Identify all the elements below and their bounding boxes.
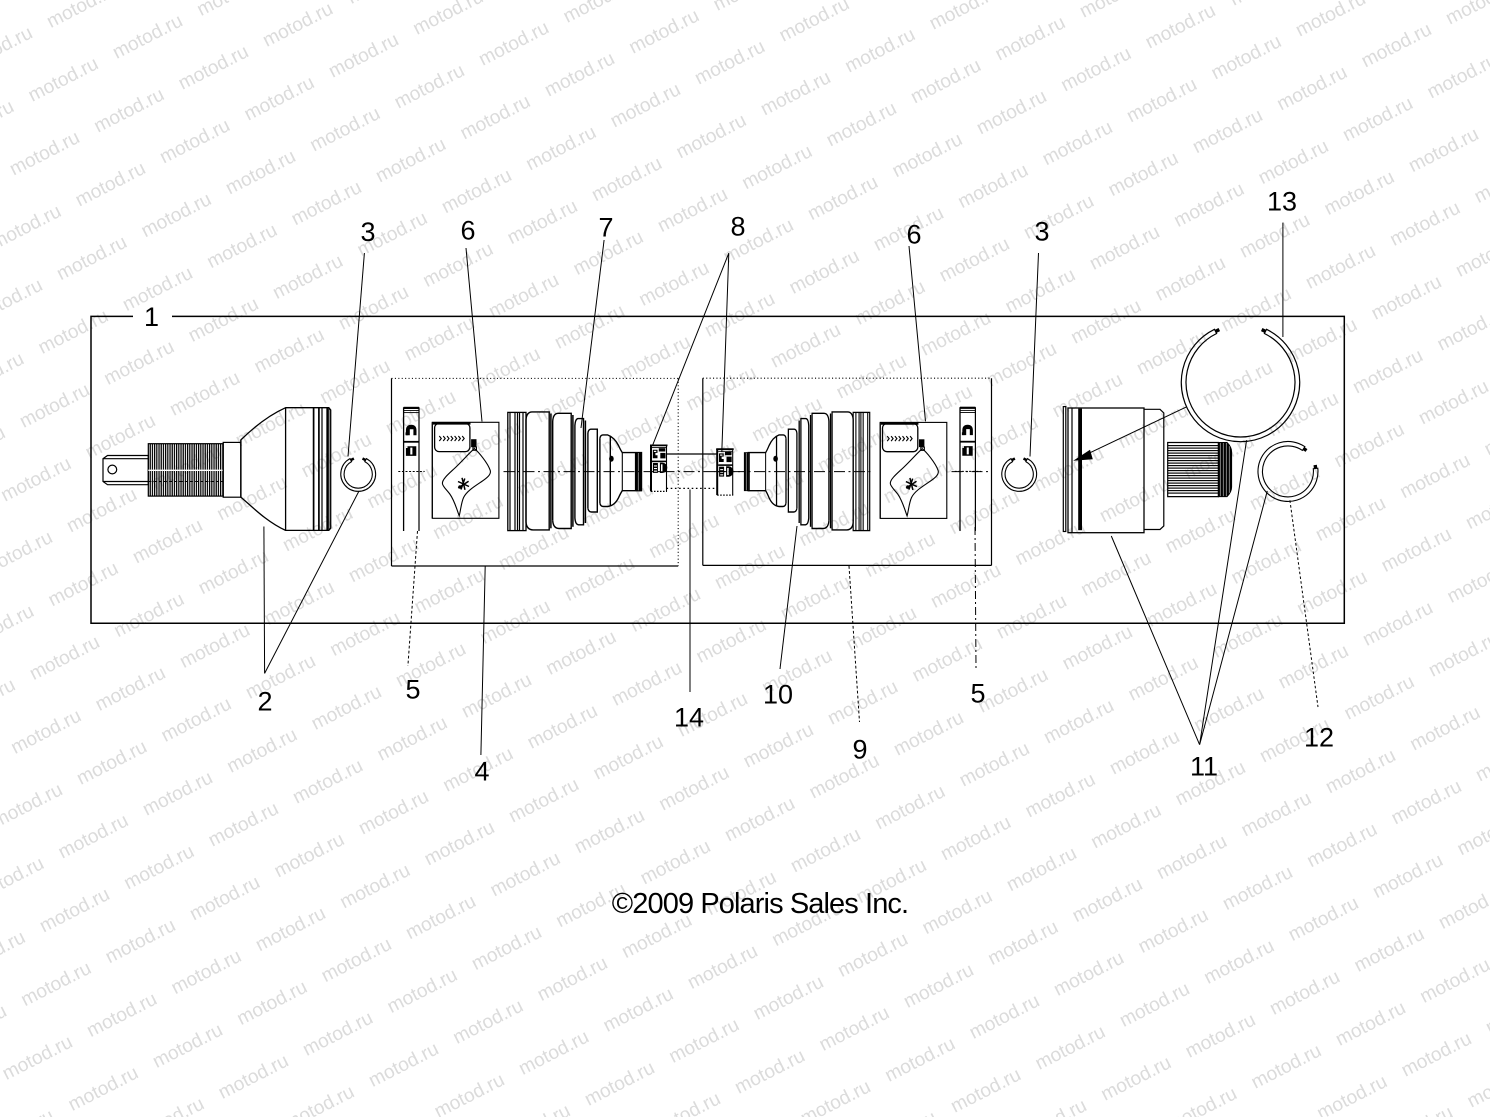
svg-text:motod.ru: motod.ru xyxy=(1106,726,1183,779)
svg-text:motod.ru: motod.ru xyxy=(420,239,497,292)
svg-text:motod.ru: motod.ru xyxy=(1059,622,1136,675)
svg-text:motod.ru: motod.ru xyxy=(626,5,703,58)
svg-text:motod.ru: motod.ru xyxy=(908,55,985,108)
svg-text:motod.ru: motod.ru xyxy=(373,134,450,187)
svg-text:motod.ru: motod.ru xyxy=(1088,800,1165,853)
svg-text:motod.ru: motod.ru xyxy=(234,977,311,1030)
svg-text:motod.ru: motod.ru xyxy=(1208,31,1285,84)
svg-text:motod.ru: motod.ru xyxy=(457,91,534,144)
svg-text:motod.ru: motod.ru xyxy=(0,1001,10,1054)
svg-text:motod.ru: motod.ru xyxy=(1340,93,1417,146)
svg-text:motod.ru: motod.ru xyxy=(589,153,666,206)
svg-text:motod.ru: motod.ru xyxy=(890,707,967,760)
svg-text:motod.ru: motod.ru xyxy=(1201,936,1278,989)
svg-text:motod.ru: motod.ru xyxy=(722,793,799,846)
svg-text:1: 1 xyxy=(144,302,159,332)
svg-text:motod.ru: motod.ru xyxy=(1032,1021,1109,1074)
svg-text:motod.ru: motod.ru xyxy=(504,196,581,249)
svg-text:motod.ru: motod.ru xyxy=(477,596,554,649)
svg-text:motod.ru: motod.ru xyxy=(1463,481,1490,534)
svg-text:motod.ru: motod.ru xyxy=(411,565,488,618)
svg-text:5: 5 xyxy=(970,679,985,709)
svg-text:motod.ru: motod.ru xyxy=(0,779,66,832)
svg-text:motod.ru: motod.ru xyxy=(111,589,188,642)
svg-text:motod.ru: motod.ru xyxy=(0,1105,58,1117)
svg-text:motod.ru: motod.ru xyxy=(938,812,1015,865)
svg-text:motod.ru: motod.ru xyxy=(92,663,169,716)
svg-text:motod.ru: motod.ru xyxy=(835,929,912,982)
svg-text:motod.ru: motod.ru xyxy=(551,301,628,354)
svg-text:motod.ru: motod.ru xyxy=(1368,271,1445,324)
svg-text:motod.ru: motod.ru xyxy=(6,127,83,180)
svg-text:motod.ru: motod.ru xyxy=(590,731,667,784)
svg-text:motod.ru: motod.ru xyxy=(580,479,657,532)
svg-text:motod.ru: motod.ru xyxy=(167,367,244,420)
svg-text:motod.ru: motod.ru xyxy=(1116,979,1193,1032)
svg-text:motod.ru: motod.ru xyxy=(1405,124,1482,177)
svg-text:motod.ru: motod.ru xyxy=(129,515,206,568)
svg-text:motod.ru: motod.ru xyxy=(1189,105,1266,158)
svg-text:motod.ru: motod.ru xyxy=(1312,493,1389,546)
svg-text:motod.ru: motod.ru xyxy=(1049,369,1126,422)
svg-text:motod.ru: motod.ru xyxy=(1435,881,1490,934)
svg-text:motod.ru: motod.ru xyxy=(410,0,487,40)
svg-text:motod.ru: motod.ru xyxy=(1370,850,1447,903)
svg-text:motod.ru: motod.ru xyxy=(1209,610,1286,663)
svg-text:motod.ru: motod.ru xyxy=(450,996,527,1049)
svg-text:motod.ru: motod.ru xyxy=(797,1076,874,1117)
svg-text:motod.ru: motod.ru xyxy=(384,965,461,1018)
svg-text:3: 3 xyxy=(360,217,375,247)
svg-text:motod.ru: motod.ru xyxy=(956,738,1033,791)
svg-text:motod.ru: motod.ru xyxy=(992,12,1069,65)
svg-text:motod.ru: motod.ru xyxy=(308,682,385,735)
svg-text:motod.ru: motod.ru xyxy=(271,829,348,882)
svg-text:motod.ru: motod.ru xyxy=(1164,1083,1241,1117)
svg-text:motod.ru: motod.ru xyxy=(560,0,637,28)
svg-text:motod.ru: motod.ru xyxy=(468,922,545,975)
svg-text:motod.ru: motod.ru xyxy=(1378,524,1455,577)
svg-text:14: 14 xyxy=(674,703,704,733)
svg-text:3: 3 xyxy=(1034,217,1049,247)
svg-text:motod.ru: motod.ru xyxy=(872,781,949,834)
svg-text:motod.ru: motod.ru xyxy=(683,362,760,415)
svg-text:motod.ru: motod.ru xyxy=(1248,1040,1325,1093)
svg-text:motod.ru: motod.ru xyxy=(8,706,85,759)
svg-text:motod.ru: motod.ru xyxy=(739,141,816,194)
svg-text:motod.ru: motod.ru xyxy=(344,0,421,9)
svg-text:motod.ru: motod.ru xyxy=(300,1008,377,1061)
svg-text:motod.ru: motod.ru xyxy=(730,467,807,520)
svg-text:motod.ru: motod.ru xyxy=(1199,357,1276,410)
svg-text:motod.ru: motod.ru xyxy=(786,246,863,299)
svg-text:motod.ru: motod.ru xyxy=(1003,843,1080,896)
svg-text:motod.ru: motod.ru xyxy=(1274,62,1351,115)
svg-text:motod.ru: motod.ru xyxy=(1292,0,1369,41)
svg-text:8: 8 xyxy=(730,212,745,242)
svg-text:motod.ru: motod.ru xyxy=(139,767,216,820)
svg-text:motod.ru: motod.ru xyxy=(600,984,677,1037)
svg-text:4: 4 xyxy=(474,757,489,787)
svg-text:motod.ru: motod.ru xyxy=(1434,302,1490,355)
svg-text:12: 12 xyxy=(1304,723,1334,753)
svg-text:motod.ru: motod.ru xyxy=(0,349,28,402)
svg-text:motod.ru: motod.ru xyxy=(823,98,900,151)
svg-text:motod.ru: motod.ru xyxy=(541,48,618,101)
svg-text:motod.ru: motod.ru xyxy=(194,0,271,21)
svg-text:motod.ru: motod.ru xyxy=(1078,548,1155,601)
svg-text:motod.ru: motod.ru xyxy=(617,331,694,384)
svg-text:motod.ru: motod.ru xyxy=(497,1100,574,1117)
svg-text:motod.ru: motod.ru xyxy=(36,884,113,937)
svg-text:motod.ru: motod.ru xyxy=(345,534,422,587)
svg-text:motod.ru: motod.ru xyxy=(1332,997,1409,1050)
svg-text:motod.ru: motod.ru xyxy=(1444,555,1490,608)
svg-text:motod.ru: motod.ru xyxy=(241,72,318,125)
svg-text:motod.ru: motod.ru xyxy=(749,393,826,446)
svg-text:motod.ru: motod.ru xyxy=(692,36,769,89)
svg-text:motod.ru: motod.ru xyxy=(673,110,750,163)
svg-text:motod.ru: motod.ru xyxy=(476,17,553,70)
svg-text:motod.ru: motod.ru xyxy=(393,639,470,692)
svg-text:motod.ru: motod.ru xyxy=(185,294,262,347)
svg-text:motod.ru: motod.ru xyxy=(175,41,252,94)
svg-text:motod.ru: motod.ru xyxy=(852,277,929,330)
svg-text:motod.ru: motod.ru xyxy=(1012,517,1089,570)
svg-text:motod.ru: motod.ru xyxy=(355,786,432,839)
svg-text:motod.ru: motod.ru xyxy=(1228,536,1305,589)
svg-text:motod.ru: motod.ru xyxy=(252,903,329,956)
svg-text:motod.ru: motod.ru xyxy=(1135,905,1212,958)
svg-text:motod.ru: motod.ru xyxy=(1238,788,1315,841)
svg-text:motod.ru: motod.ru xyxy=(0,96,18,149)
svg-text:motod.ru: motod.ru xyxy=(205,798,282,851)
svg-text:motod.ru: motod.ru xyxy=(1051,948,1128,1001)
svg-text:6: 6 xyxy=(460,216,475,246)
svg-text:motod.ru: motod.ru xyxy=(25,53,102,106)
svg-text:motod.ru: motod.ru xyxy=(1424,50,1490,103)
svg-text:motod.ru: motod.ru xyxy=(506,774,583,827)
svg-text:motod.ru: motod.ru xyxy=(966,991,1043,1044)
svg-text:motod.ru: motod.ru xyxy=(270,251,347,304)
svg-text:motod.ru: motod.ru xyxy=(627,584,704,637)
svg-text:motod.ru: motod.ru xyxy=(298,429,375,482)
svg-text:11: 11 xyxy=(1190,752,1218,782)
svg-text:motod.ru: motod.ru xyxy=(882,1033,959,1086)
svg-text:motod.ru: motod.ru xyxy=(0,0,55,2)
svg-text:motod.ru: motod.ru xyxy=(928,560,1005,613)
svg-text:motod.ru: motod.ru xyxy=(1162,505,1239,558)
svg-text:motod.ru: motod.ru xyxy=(1302,241,1379,294)
svg-text:motod.ru: motod.ru xyxy=(0,22,36,75)
svg-text:motod.ru: motod.ru xyxy=(438,165,515,218)
svg-text:motod.ru: motod.ru xyxy=(776,0,853,46)
svg-text:motod.ru: motod.ru xyxy=(543,627,620,680)
svg-text:motod.ru: motod.ru xyxy=(1086,222,1163,275)
svg-text:motod.ru: motod.ru xyxy=(177,620,254,673)
svg-text:motod.ru: motod.ru xyxy=(0,201,65,254)
svg-text:motod.ru: motod.ru xyxy=(787,824,864,877)
svg-text:motod.ru: motod.ru xyxy=(18,958,95,1011)
svg-text:motod.ru: motod.ru xyxy=(327,608,404,661)
svg-text:motod.ru: motod.ru xyxy=(44,0,121,33)
svg-text:motod.ru: motod.ru xyxy=(215,1051,292,1104)
svg-text:motod.ru: motod.ru xyxy=(985,917,1062,970)
svg-text:motod.ru: motod.ru xyxy=(636,258,713,311)
svg-text:motod.ru: motod.ru xyxy=(1039,117,1116,170)
svg-text:motod.ru: motod.ru xyxy=(1481,407,1490,460)
svg-text:motod.ru: motod.ru xyxy=(880,455,957,508)
svg-text:motod.ru: motod.ru xyxy=(647,1088,724,1117)
svg-text:motod.ru: motod.ru xyxy=(1425,628,1490,681)
svg-text:motod.ru: motod.ru xyxy=(288,177,365,230)
svg-text:motod.ru: motod.ru xyxy=(0,601,38,654)
svg-text:motod.ru: motod.ru xyxy=(0,1032,76,1085)
svg-text:motod.ru: motod.ru xyxy=(975,664,1052,717)
svg-text:motod.ru: motod.ru xyxy=(983,338,1060,391)
svg-text:motod.ru: motod.ru xyxy=(524,700,601,753)
svg-text:motod.ru: motod.ru xyxy=(833,350,910,403)
svg-text:motod.ru: motod.ru xyxy=(702,289,779,342)
svg-text:motod.ru: motod.ru xyxy=(1350,345,1427,398)
svg-text:motod.ru: motod.ru xyxy=(1219,862,1296,915)
svg-text:motod.ru: motod.ru xyxy=(54,232,131,285)
svg-text:motod.ru: motod.ru xyxy=(195,546,272,599)
svg-text:9: 9 xyxy=(852,735,867,765)
svg-text:motod.ru: motod.ru xyxy=(84,989,161,1042)
svg-text:motod.ru: motod.ru xyxy=(1314,1071,1391,1117)
svg-text:motod.ru: motod.ru xyxy=(0,675,19,728)
svg-text:motod.ru: motod.ru xyxy=(1002,265,1079,318)
svg-text:motod.ru: motod.ru xyxy=(1321,167,1398,220)
svg-text:7: 7 xyxy=(598,213,613,243)
svg-text:motod.ru: motod.ru xyxy=(131,1093,208,1117)
svg-text:motod.ru: motod.ru xyxy=(1358,19,1435,72)
svg-text:motod.ru: motod.ru xyxy=(251,325,328,378)
svg-text:motod.ru: motod.ru xyxy=(919,886,996,939)
svg-text:motod.ru: motod.ru xyxy=(1154,831,1231,884)
svg-text:motod.ru: motod.ru xyxy=(158,694,235,747)
svg-text:motod.ru: motod.ru xyxy=(571,805,648,858)
svg-text:motod.ru: motod.ru xyxy=(607,79,684,132)
svg-text:motod.ru: motod.ru xyxy=(973,86,1050,139)
svg-text:motod.ru: motod.ru xyxy=(487,848,564,901)
svg-text:motod.ru: motod.ru xyxy=(863,1107,940,1117)
svg-text:motod.ru: motod.ru xyxy=(862,529,939,582)
svg-text:motod.ru: motod.ru xyxy=(656,762,733,815)
svg-text:motod.ru: motod.ru xyxy=(767,319,844,372)
svg-text:motod.ru: motod.ru xyxy=(523,122,600,175)
svg-text:motod.ru: motod.ru xyxy=(102,915,179,968)
svg-text:motod.ru: motod.ru xyxy=(1171,179,1248,232)
svg-text:motod.ru: motod.ru xyxy=(364,460,441,513)
svg-text:motod.ru: motod.ru xyxy=(1360,598,1437,651)
svg-text:motod.ru: motod.ru xyxy=(516,1027,593,1080)
svg-text:motod.ru: motod.ru xyxy=(712,541,789,594)
svg-text:motod.ru: motod.ru xyxy=(0,853,48,906)
svg-text:motod.ru: motod.ru xyxy=(805,172,882,225)
svg-text:motod.ru: motod.ru xyxy=(948,1064,1025,1117)
svg-text:motod.ru: motod.ru xyxy=(889,129,966,182)
svg-text:motod.ru: motod.ru xyxy=(1227,0,1304,10)
svg-text:motod.ru: motod.ru xyxy=(1068,295,1145,348)
svg-text:motod.ru: motod.ru xyxy=(1041,695,1118,748)
svg-text:motod.ru: motod.ru xyxy=(0,422,9,475)
svg-text:motod.ru: motod.ru xyxy=(1341,671,1418,724)
svg-text:motod.ru: motod.ru xyxy=(242,651,319,704)
svg-text:motod.ru: motod.ru xyxy=(581,1057,658,1110)
svg-text:motod.ru: motod.ru xyxy=(1473,733,1490,786)
svg-text:motod.ru: motod.ru xyxy=(1098,1052,1175,1105)
svg-text:motod.ru: motod.ru xyxy=(710,0,787,16)
svg-text:motod.ru: motod.ru xyxy=(1464,1059,1490,1112)
svg-text:motod.ru: motod.ru xyxy=(0,453,75,506)
svg-text:motod.ru: motod.ru xyxy=(157,115,234,168)
svg-text:motod.ru: motod.ru xyxy=(1483,985,1490,1038)
svg-text:motod.ru: motod.ru xyxy=(842,24,919,77)
svg-text:motod.ru: motod.ru xyxy=(72,158,149,211)
svg-text:motod.ru: motod.ru xyxy=(281,1081,358,1117)
svg-text:motod.ru: motod.ru xyxy=(222,146,299,199)
svg-text:motod.ru: motod.ru xyxy=(290,755,367,808)
svg-text:motod.ru: motod.ru xyxy=(1380,1102,1457,1117)
svg-text:motod.ru: motod.ru xyxy=(1415,376,1490,429)
svg-text:motod.ru: motod.ru xyxy=(1022,769,1099,822)
svg-text:motod.ru: motod.ru xyxy=(1021,191,1098,244)
svg-text:13: 13 xyxy=(1267,187,1297,217)
svg-text:motod.ru: motod.ru xyxy=(757,67,834,120)
svg-text:motod.ru: motod.ru xyxy=(224,724,301,777)
svg-text:motod.ru: motod.ru xyxy=(750,972,827,1025)
svg-text:motod.ru: motod.ru xyxy=(1255,136,1332,189)
svg-text:motod.ru: motod.ru xyxy=(684,941,761,994)
svg-text:motod.ru: motod.ru xyxy=(401,313,478,366)
svg-text:motod.ru: motod.ru xyxy=(646,510,723,563)
svg-text:motod.ru: motod.ru xyxy=(64,484,141,537)
svg-text:motod.ru: motod.ru xyxy=(1076,0,1153,22)
svg-text:motod.ru: motod.ru xyxy=(1304,819,1381,872)
svg-text:motod.ru: motod.ru xyxy=(816,1003,893,1056)
svg-text:motod.ru: motod.ru xyxy=(1417,955,1490,1008)
svg-text:2: 2 xyxy=(257,687,272,717)
svg-text:motod.ru: motod.ru xyxy=(1398,1028,1475,1081)
svg-text:motod.ru: motod.ru xyxy=(421,817,498,870)
svg-text:motod.ru: motod.ru xyxy=(1322,745,1399,798)
svg-text:motod.ru: motod.ru xyxy=(214,472,291,525)
svg-text:motod.ru: motod.ru xyxy=(35,306,112,359)
svg-text:motod.ru: motod.ru xyxy=(374,712,451,765)
svg-text:motod.ru: motod.ru xyxy=(1387,198,1464,251)
svg-text:motod.ru: motod.ru xyxy=(1265,388,1342,441)
svg-text:motod.ru: motod.ru xyxy=(1096,474,1173,527)
svg-text:motod.ru: motod.ru xyxy=(1471,155,1490,208)
svg-text:motod.ru: motod.ru xyxy=(666,1015,743,1068)
svg-text:motod.ru: motod.ru xyxy=(45,558,122,611)
svg-text:motod.ru: motod.ru xyxy=(121,841,198,894)
svg-text:motod.ru: motod.ru xyxy=(936,234,1013,287)
svg-text:motod.ru: motod.ru xyxy=(0,275,46,328)
svg-text:motod.ru: motod.ru xyxy=(431,1069,508,1117)
svg-text:motod.ru: motod.ru xyxy=(91,84,168,137)
svg-text:motod.ru: motod.ru xyxy=(1152,253,1229,306)
svg-text:motod.ru: motod.ru xyxy=(946,486,1023,539)
svg-text:motod.ru: motod.ru xyxy=(307,103,384,156)
svg-text:motod.ru: motod.ru xyxy=(1142,0,1219,53)
svg-text:motod.ru: motod.ru xyxy=(1331,419,1408,472)
svg-text:motod.ru: motod.ru xyxy=(260,0,337,52)
svg-text:motod.ru: motod.ru xyxy=(965,412,1042,465)
svg-text:motod.ru: motod.ru xyxy=(637,836,714,889)
svg-text:motod.ru: motod.ru xyxy=(955,160,1032,213)
svg-text:motod.ru: motod.ru xyxy=(825,676,902,729)
svg-text:motod.ru: motod.ru xyxy=(486,270,563,323)
svg-text:motod.ru: motod.ru xyxy=(1124,74,1201,127)
svg-text:motod.ru: motod.ru xyxy=(109,10,186,63)
svg-text:motod.ru: motod.ru xyxy=(365,1039,442,1092)
svg-text:motod.ru: motod.ru xyxy=(187,872,264,925)
svg-text:motod.ru: motod.ru xyxy=(403,891,480,944)
svg-text:motod.ru: motod.ru xyxy=(1407,702,1484,755)
svg-text:motod.ru: motod.ru xyxy=(1453,229,1490,282)
svg-text:motod.ru: motod.ru xyxy=(337,860,414,913)
svg-text:motod.ru: motod.ru xyxy=(335,282,412,335)
svg-text:motod.ru: motod.ru xyxy=(280,503,357,556)
svg-text:motod.ru: motod.ru xyxy=(1285,893,1362,946)
svg-text:motod.ru: motod.ru xyxy=(261,577,338,630)
svg-text:motod.ru: motod.ru xyxy=(1397,450,1474,503)
svg-text:motod.ru: motod.ru xyxy=(168,946,245,999)
svg-text:motod.ru: motod.ru xyxy=(65,1063,142,1116)
svg-text:motod.ru: motod.ru xyxy=(74,736,151,789)
svg-text:motod.ru: motod.ru xyxy=(1182,1009,1259,1062)
svg-text:motod.ru: motod.ru xyxy=(1351,924,1428,977)
svg-text:motod.ru: motod.ru xyxy=(430,491,507,544)
svg-text:motod.ru: motod.ru xyxy=(16,379,93,432)
svg-text:motod.ru: motod.ru xyxy=(900,960,977,1013)
svg-text:motod.ru: motod.ru xyxy=(391,60,468,113)
svg-text:motod.ru: motod.ru xyxy=(1134,326,1211,379)
svg-text:motod.ru: motod.ru xyxy=(654,184,731,237)
svg-text:motod.ru: motod.ru xyxy=(1069,874,1146,927)
svg-text:motod.ru: motod.ru xyxy=(55,810,132,863)
svg-text:motod.ru: motod.ru xyxy=(325,29,402,82)
svg-text:motod.ru: motod.ru xyxy=(1275,640,1352,693)
svg-text:motod.ru: motod.ru xyxy=(993,591,1070,644)
svg-text:motod.ru: motod.ru xyxy=(1443,0,1490,29)
svg-text:motod.ru: motod.ru xyxy=(561,553,638,606)
svg-text:motod.ru: motod.ru xyxy=(534,953,611,1006)
svg-text:10: 10 xyxy=(763,680,793,710)
svg-text:motod.ru: motod.ru xyxy=(1105,148,1182,201)
svg-text:motod.ru: motod.ru xyxy=(806,750,883,803)
svg-text:motod.ru: motod.ru xyxy=(1058,43,1135,96)
svg-text:motod.ru: motod.ru xyxy=(1031,443,1108,496)
svg-text:motod.ru: motod.ru xyxy=(26,632,103,685)
svg-text:motod.ru: motod.ru xyxy=(1013,1095,1090,1117)
svg-text:motod.ru: motod.ru xyxy=(149,1020,226,1073)
svg-text:motod.ru: motod.ru xyxy=(138,189,215,242)
svg-text:motod.ru: motod.ru xyxy=(740,719,817,772)
svg-text:motod.ru: motod.ru xyxy=(101,337,178,390)
svg-text:motod.ru: motod.ru xyxy=(918,307,995,360)
svg-text:motod.ru: motod.ru xyxy=(860,0,937,4)
svg-text:motod.ru: motod.ru xyxy=(0,927,29,980)
svg-text:motod.ru: motod.ru xyxy=(383,386,460,439)
svg-text:motod.ru: motod.ru xyxy=(0,527,56,580)
svg-text:motod.ru: motod.ru xyxy=(232,398,309,451)
svg-text:motod.ru: motod.ru xyxy=(458,670,535,723)
svg-text:motod.ru: motod.ru xyxy=(347,1112,424,1117)
